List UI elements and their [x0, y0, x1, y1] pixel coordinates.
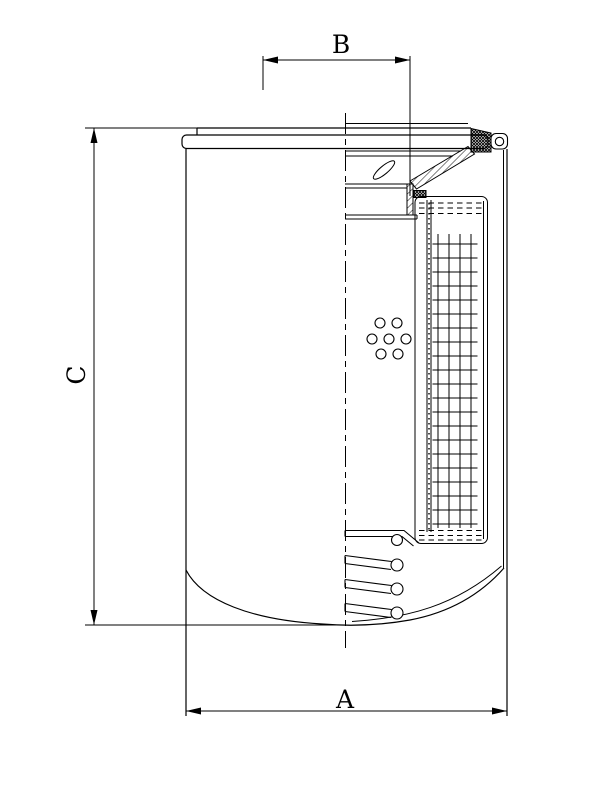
dim-a-arrow-right: [492, 708, 507, 715]
bottom-end-cap-adhesive: [419, 531, 483, 541]
plate-slope-band: [410, 147, 475, 190]
dim-a-arrow-left: [186, 708, 201, 715]
dimension-a-label: A: [335, 685, 355, 714]
seam-wire: [495, 137, 503, 145]
rolled-lip: [182, 135, 488, 149]
dimension-c-label: C: [62, 365, 91, 384]
dim-b-arrow-right: [395, 57, 410, 64]
bottom-dome-inner: [352, 566, 502, 622]
spring-wire-4: [391, 607, 403, 619]
canister-shell: [182, 124, 507, 717]
dim-c-arrow-top: [91, 128, 98, 143]
filter-section-drawing: B C A: [0, 0, 612, 792]
thread-boss: [407, 184, 413, 215]
dimension-b: B: [263, 30, 410, 196]
spring-wire-2: [391, 559, 403, 571]
gasket-crosshatch: [471, 129, 491, 153]
filter-element: [415, 197, 488, 544]
coil-spring: [345, 535, 403, 620]
spring-wire-1: [392, 535, 403, 546]
dim-c-arrow-bottom: [91, 610, 98, 625]
dimension-a: A: [186, 685, 507, 715]
seam-outline: [491, 134, 508, 150]
filter-media-grid: [433, 234, 478, 528]
top-end-cap-adhesive: [419, 203, 483, 214]
gasket-seal: [471, 129, 491, 153]
dim-b-arrow-left: [263, 57, 278, 64]
plate-hole: [371, 158, 397, 181]
spring-wire-3: [391, 583, 403, 595]
dimension-b-label: B: [332, 30, 350, 59]
drawing-page: B C A: [0, 0, 612, 792]
spring-seat-plate: [345, 531, 419, 547]
dimension-c: C: [62, 128, 345, 625]
bypass-holes: [367, 318, 411, 359]
rolled-seam: [491, 134, 508, 150]
